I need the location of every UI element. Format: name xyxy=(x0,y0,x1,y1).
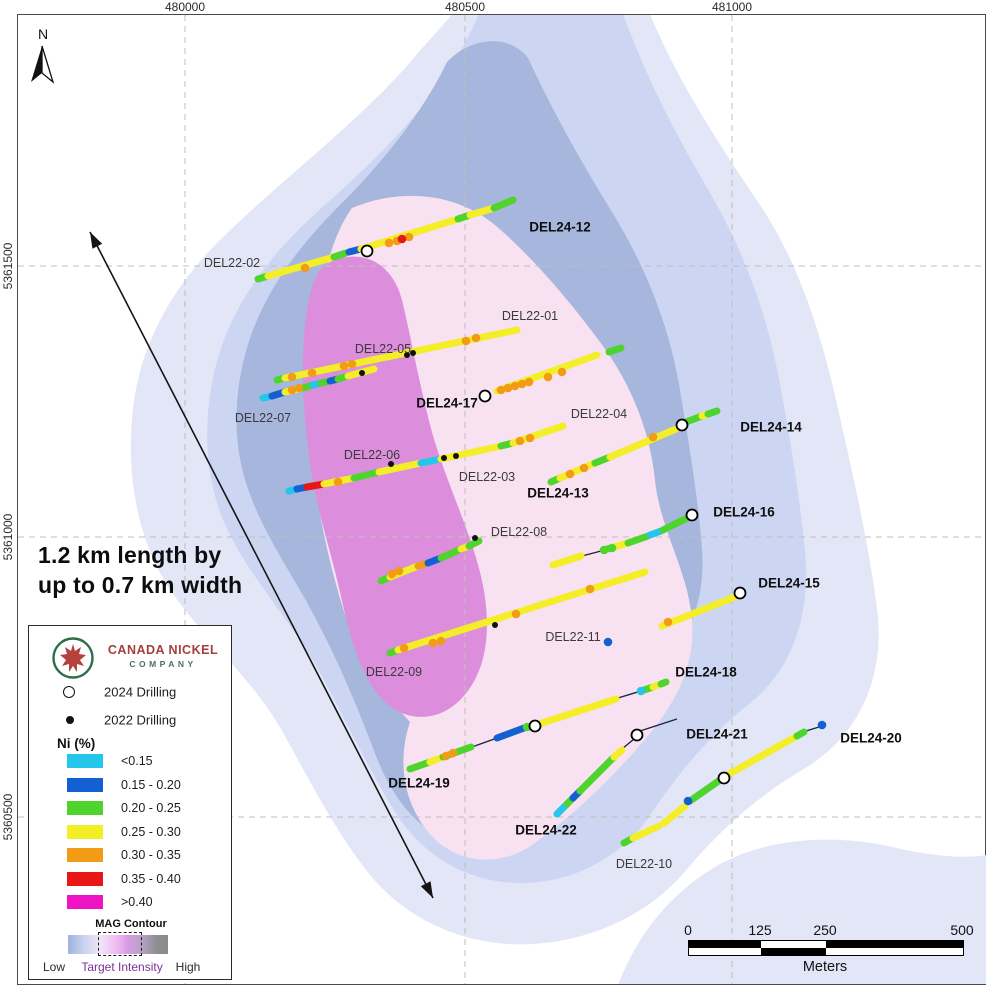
collar-2022 xyxy=(453,453,459,459)
assay-trace-segment-green xyxy=(334,253,346,257)
assay-dot-orange xyxy=(400,644,409,653)
collar-2022 xyxy=(472,535,478,541)
easting-tick-481000: 481000 xyxy=(712,0,752,14)
mag-contour-title: MAG Contour xyxy=(29,918,233,930)
assay-dot-red xyxy=(398,235,407,244)
assay-dot-blue xyxy=(604,638,613,647)
ni-class-label: 0.15 - 0.20 xyxy=(121,778,181,792)
collar-2022 xyxy=(410,350,416,356)
scalebar-tick-0: 0 xyxy=(684,922,692,938)
collar-2024 xyxy=(530,721,541,732)
assay-dot-orange xyxy=(385,239,394,248)
scalebar-segment xyxy=(826,948,963,955)
company-name-line2: COMPANY xyxy=(97,659,229,669)
ni-swatch-icon xyxy=(67,825,103,839)
assay-dot-blue xyxy=(684,797,693,806)
assay-dot-orange xyxy=(586,585,595,594)
ni-class-row: 0.25 - 0.30 xyxy=(29,821,233,845)
ni-class-row: 0.30 - 0.35 xyxy=(29,844,233,868)
assay-trace-segment-green xyxy=(661,682,666,684)
assay-trace-segment-green xyxy=(469,541,479,546)
ni-class-label: >0.40 xyxy=(121,895,153,909)
assay-trace-segment-green xyxy=(609,348,621,352)
assay-dot-cyan xyxy=(637,687,646,696)
ni-swatch-icon xyxy=(67,848,103,862)
ni-swatch-icon xyxy=(67,778,103,792)
assay-dot-orange xyxy=(525,378,534,387)
ni-swatch-icon xyxy=(67,801,103,815)
assay-trace-segment-green xyxy=(797,732,804,736)
assay-dot-orange xyxy=(437,637,446,646)
assay-dot-orange xyxy=(395,567,404,576)
assay-dot-orange xyxy=(308,369,317,378)
ni-legend-title: Ni (%) xyxy=(57,736,95,751)
scale-bar: Meters 0125250500 xyxy=(676,921,978,981)
easting-tick-480500: 480500 xyxy=(445,0,485,14)
assay-dot-green xyxy=(608,544,617,553)
ni-swatch-icon xyxy=(67,872,103,886)
northing-tick-5361000: 5361000 xyxy=(1,514,15,561)
assay-dot-orange xyxy=(449,749,458,758)
collar-2022 xyxy=(388,461,394,467)
scale-bar-graphic xyxy=(688,940,964,956)
assay-dot-orange xyxy=(340,362,349,371)
assay-dot-orange xyxy=(301,264,310,273)
assay-dot-orange xyxy=(566,470,575,479)
company-name: CANADA NICKEL COMPANY xyxy=(97,643,229,669)
assay-dot-orange xyxy=(295,384,304,393)
assay-dot-green xyxy=(600,546,609,555)
assay-dot-orange xyxy=(558,368,567,377)
legend-2022-collar-icon xyxy=(66,716,74,724)
scale-bar-unit: Meters xyxy=(803,959,847,975)
mag-high-label: High xyxy=(176,960,201,974)
assay-dot-orange xyxy=(512,610,521,619)
maple-leaf-icon xyxy=(51,636,95,680)
annotation-line2: up to 0.7 km width xyxy=(38,570,242,600)
legend-2024-drilling-label: 2024 Drilling xyxy=(104,685,176,700)
assay-trace-segment-green xyxy=(708,411,717,414)
collar-2024 xyxy=(480,391,491,402)
easting-tick-480000: 480000 xyxy=(165,0,205,14)
scalebar-segment xyxy=(826,941,963,948)
mag-low-label: Low xyxy=(43,960,65,974)
ni-class-label: 0.30 - 0.35 xyxy=(121,848,181,862)
assay-dot-orange xyxy=(526,434,535,443)
assay-dot-orange xyxy=(472,334,481,343)
northing-tick-5361500: 5361500 xyxy=(1,243,15,290)
ni-class-row: 0.15 - 0.20 xyxy=(29,774,233,798)
ni-class-row: 0.20 - 0.25 xyxy=(29,797,233,821)
scalebar-segment xyxy=(689,941,761,948)
ni-swatch-icon xyxy=(67,895,103,909)
assay-dot-orange xyxy=(348,360,357,369)
legend-panel: CANADA NICKEL COMPANY 2024 Drilling 2022… xyxy=(28,625,232,980)
assay-dot-orange xyxy=(516,437,525,446)
assay-dot-orange xyxy=(334,478,343,487)
collar-2024 xyxy=(362,246,373,257)
collar-2022 xyxy=(404,352,410,358)
scalebar-segment xyxy=(761,948,826,955)
assay-dot-orange xyxy=(544,373,553,382)
assay-dot-orange xyxy=(462,337,471,346)
northing-tick-5360500: 5360500 xyxy=(1,794,15,841)
collar-2024 xyxy=(687,510,698,521)
collar-2022 xyxy=(441,455,447,461)
ni-class-label: <0.15 xyxy=(121,754,153,768)
arrowhead-top xyxy=(90,232,102,249)
company-logo: CANADA NICKEL COMPANY xyxy=(43,634,229,682)
legend-2024-collar-icon xyxy=(63,686,75,698)
assay-trace-segment-cyan xyxy=(650,531,661,535)
north-arrow-label: N xyxy=(38,26,48,42)
collar-2024 xyxy=(735,588,746,599)
ni-class-label: 0.35 - 0.40 xyxy=(121,872,181,886)
north-arrow-icon-half xyxy=(42,46,53,82)
ni-class-label: 0.20 - 0.25 xyxy=(121,801,181,815)
scalebar-segment xyxy=(761,941,826,948)
scalebar-segment xyxy=(689,948,761,955)
assay-dot-orange xyxy=(580,464,589,473)
legend-2022-drilling-label: 2022 Drilling xyxy=(104,713,176,728)
assay-dot-orange xyxy=(664,618,673,627)
collar-2024 xyxy=(677,420,688,431)
dimension-annotation: 1.2 km length by up to 0.7 km width xyxy=(38,540,242,600)
mag-target-intensity-label: Target Intensity xyxy=(81,960,162,974)
ni-class-row: 0.35 - 0.40 xyxy=(29,868,233,892)
collar-2024 xyxy=(632,730,643,741)
annotation-line1: 1.2 km length by xyxy=(38,540,242,570)
north-arrow-icon xyxy=(31,46,42,82)
mag-target-dashed-box xyxy=(98,932,142,956)
company-name-line1: CANADA NICKEL xyxy=(97,643,229,657)
assay-dot-orange xyxy=(429,639,438,648)
scalebar-tick-500: 500 xyxy=(950,922,973,938)
assay-dot-orange xyxy=(288,373,297,382)
collar-2022 xyxy=(359,370,365,376)
scalebar-tick-250: 250 xyxy=(813,922,836,938)
ni-swatch-icon xyxy=(67,754,103,768)
ni-class-row: >0.40 xyxy=(29,891,233,915)
ni-class-row: <0.15 xyxy=(29,750,233,774)
collar-2024 xyxy=(719,773,730,784)
scalebar-tick-125: 125 xyxy=(748,922,771,938)
assay-dot-blue xyxy=(818,721,827,730)
collar-2022 xyxy=(492,622,498,628)
assay-dot-orange xyxy=(649,433,658,442)
ni-class-label: 0.25 - 0.30 xyxy=(121,825,181,839)
